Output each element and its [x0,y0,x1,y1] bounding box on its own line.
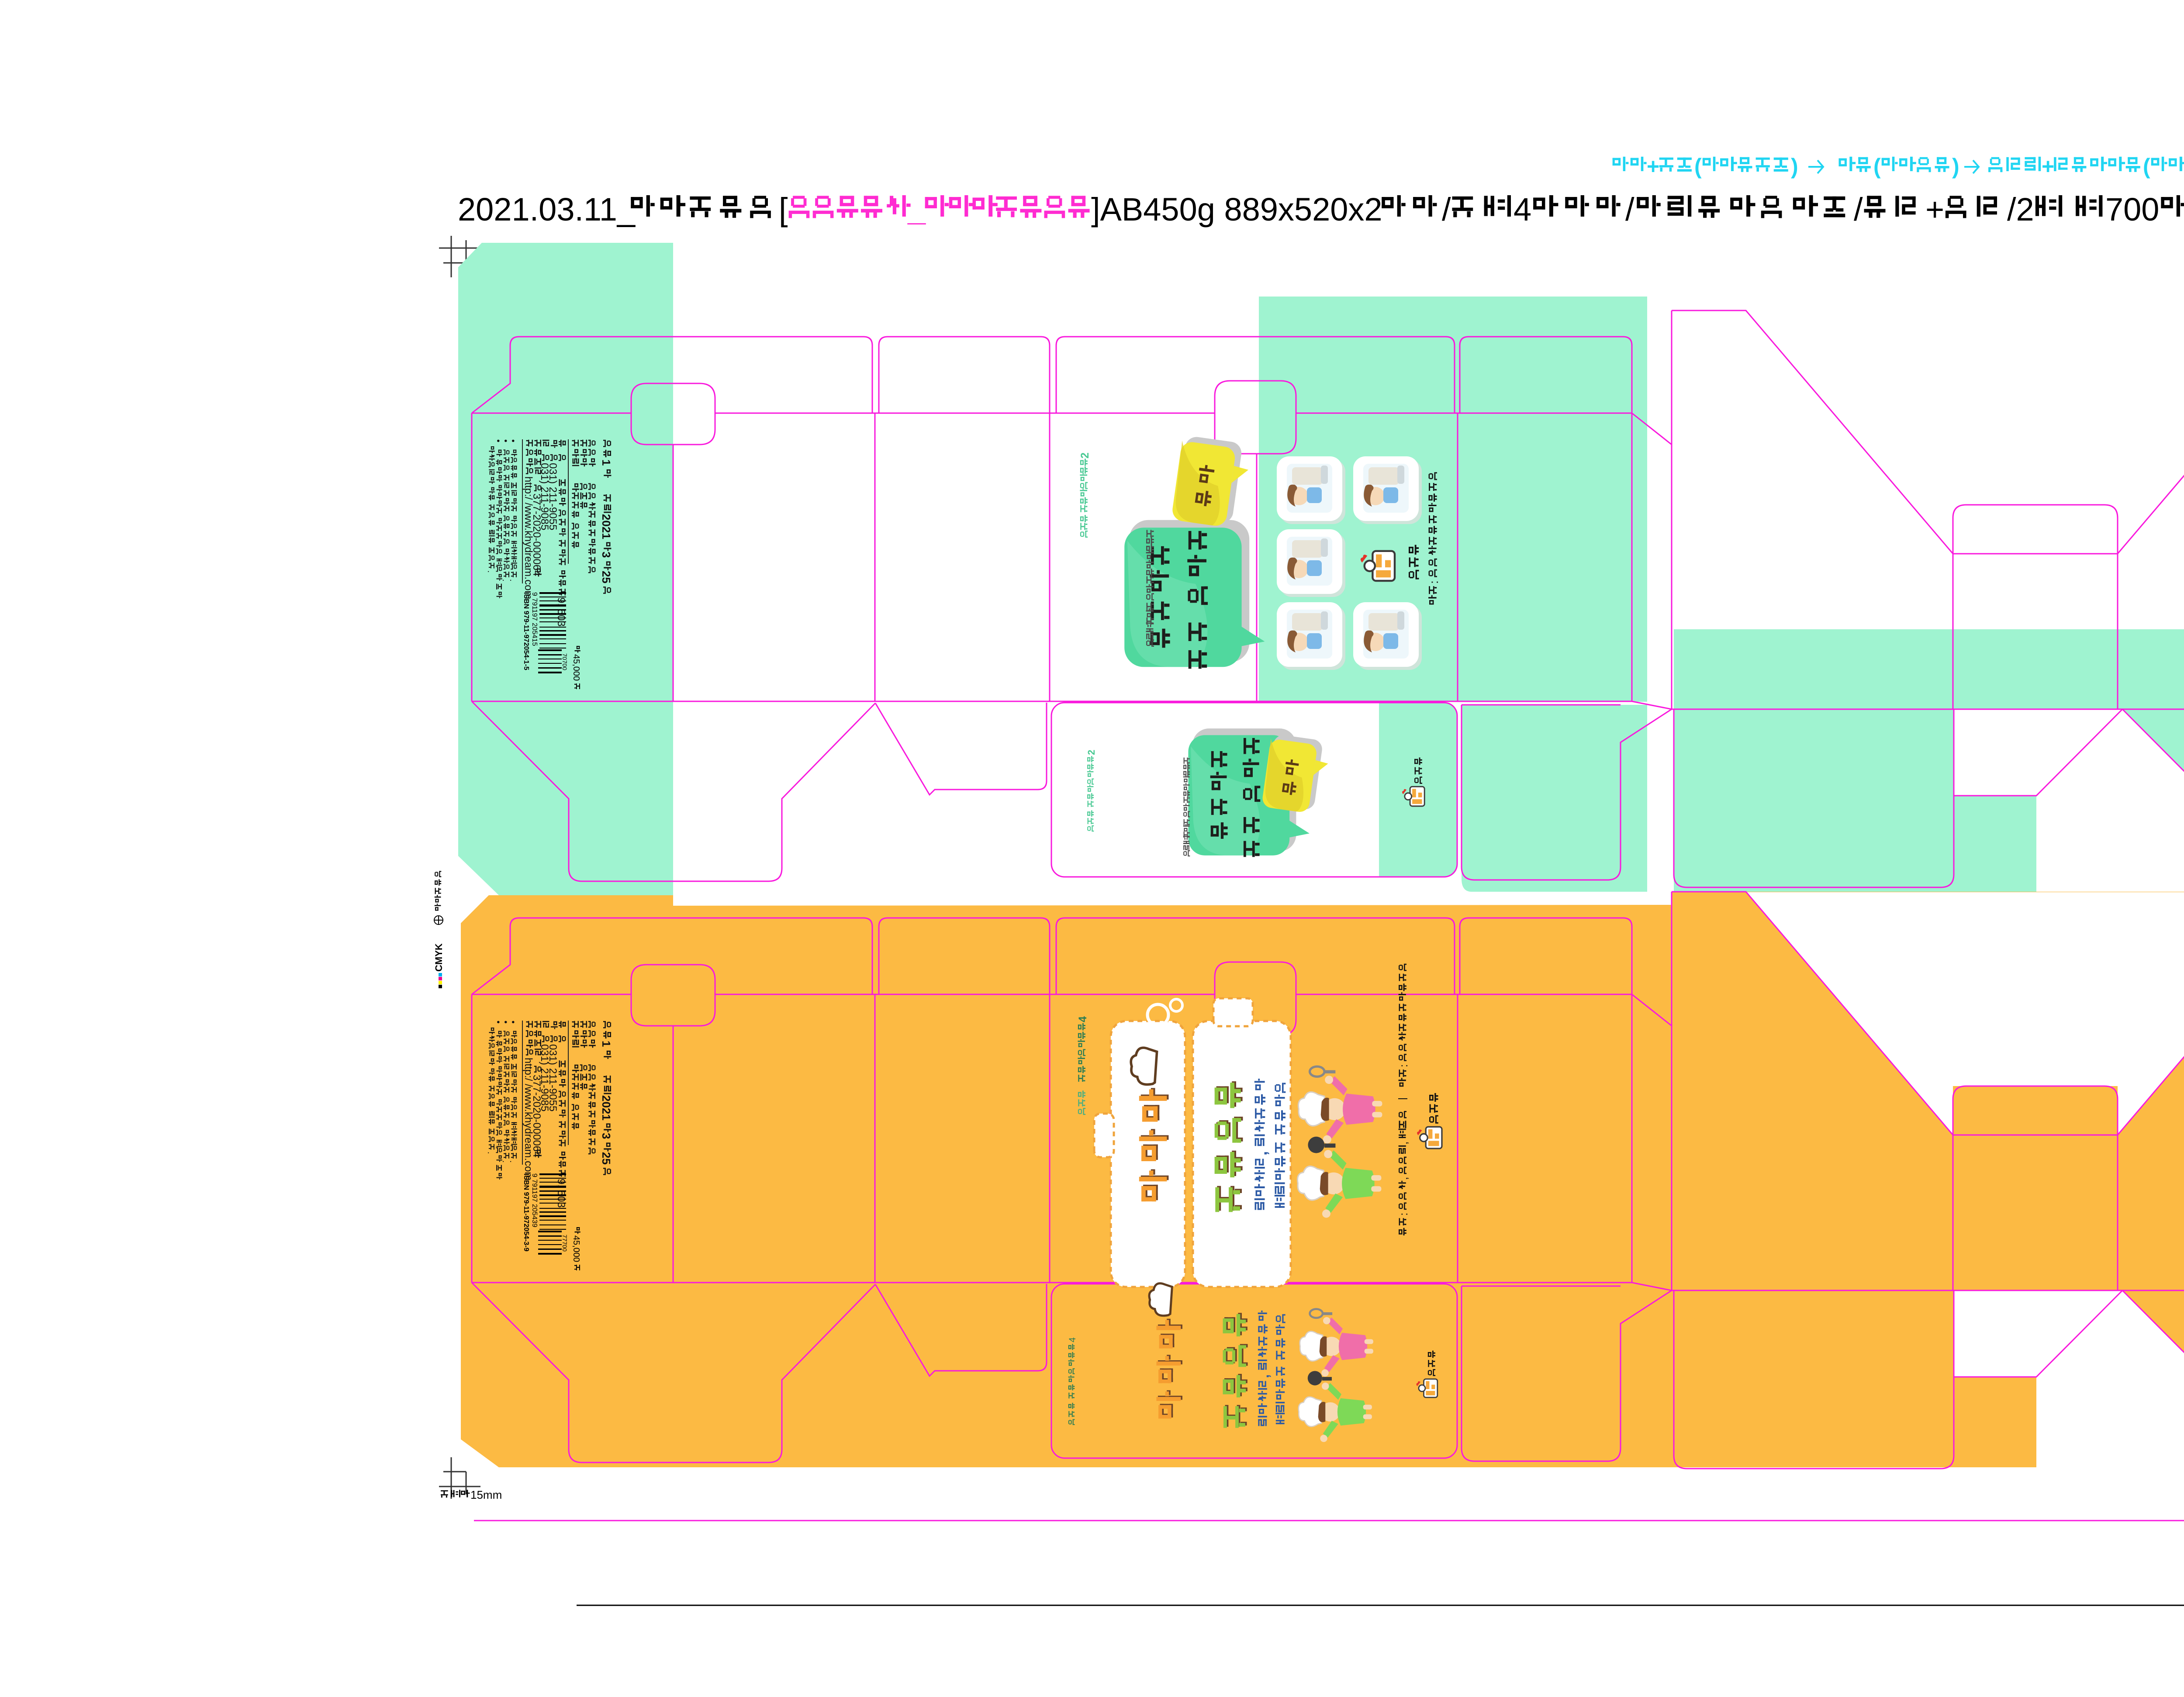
svg-text:2: 2 [1079,452,1091,459]
svg-text:]AB450g 889x520x2: ]AB450g 889x520x2 [1091,191,1382,228]
svg-text::: : [1397,1064,1410,1067]
svg-text:3: 3 [600,1133,613,1139]
svg-text:(: ( [1694,154,1702,179]
svg-text:•: • [493,439,503,442]
svg-text:45,000: 45,000 [571,654,581,681]
svg-text:15mm: 15mm [470,1488,502,1501]
svg-text:http:/ /www.khydream.com: http:/ /www.khydream.com [522,476,534,599]
svg-text:2021.03.11_: 2021.03.11_ [458,191,636,228]
svg-text:,: , [1397,1142,1410,1145]
svg-text:): ) [1791,154,1798,179]
svg-text:25: 25 [600,1152,613,1165]
svg-text:): ) [1952,154,1959,179]
svg-text:,: , [1256,1374,1272,1378]
svg-text:9 791197 205415: 9 791197 205415 [531,592,538,646]
svg-text:2: 2 [1086,750,1097,755]
svg-text:+: + [1647,154,1659,179]
svg-text:+: + [1925,191,1944,228]
svg-text:1: 1 [600,459,613,466]
svg-text:.: . [486,570,495,573]
svg-text:.: . [501,1160,510,1163]
svg-text:4: 4 [1068,1337,1078,1342]
svg-text:.: . [501,579,510,582]
svg-text:4: 4 [1514,191,1531,228]
svg-text:2021: 2021 [600,1095,613,1121]
svg-text:.: . [486,1152,495,1154]
svg-text:/: / [1442,191,1451,228]
svg-text:77700: 77700 [561,1235,568,1252]
svg-text:/: / [1854,191,1863,228]
svg-text::: : [1427,580,1441,584]
svg-text:/: / [1625,191,1635,228]
svg-text:,: , [1397,1177,1410,1180]
svg-text:(: ( [1873,154,1881,179]
svg-text::: : [1397,1213,1410,1216]
svg-text:+: + [2042,154,2054,179]
svg-text:45,000: 45,000 [571,1235,581,1262]
svg-text:25: 25 [600,571,613,583]
svg-text:,: , [1252,1151,1270,1155]
svg-text:(: ( [2143,154,2150,179]
svg-text:70700: 70700 [561,653,568,670]
svg-text:2021: 2021 [600,514,613,539]
svg-text:ISBN 979-11-972054-3-9: ISBN 979-11-972054-3-9 [522,1173,530,1252]
svg-text:/2: /2 [2007,191,2034,228]
svg-text:1: 1 [600,1041,613,1047]
svg-text:9 791197 205439: 9 791197 205439 [531,1173,538,1227]
svg-text:CMYK: CMYK [433,943,444,972]
svg-text:3: 3 [600,552,613,558]
svg-text:_: _ [907,191,926,228]
svg-text:ISBN 979-11-972054-1-5: ISBN 979-11-972054-1-5 [522,592,530,670]
svg-text:http:/ /www.khydream.com: http:/ /www.khydream.com [522,1058,534,1180]
svg-text:4: 4 [1077,1016,1089,1022]
svg-text:[: [ [779,191,788,228]
svg-text:•: • [493,1021,503,1024]
svg-text:700: 700 [2105,191,2159,228]
